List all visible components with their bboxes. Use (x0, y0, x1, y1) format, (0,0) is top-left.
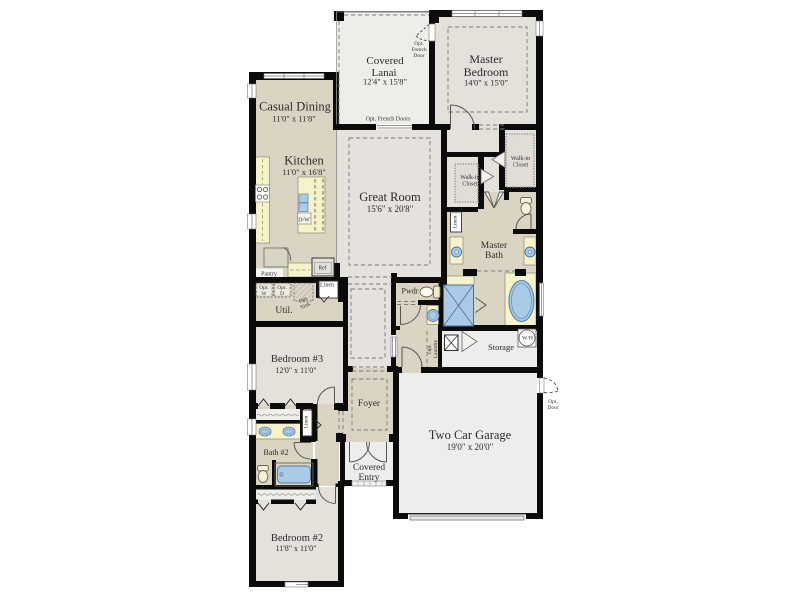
svg-text:Walk-in: Walk-in (460, 175, 479, 181)
svg-text:Bath: Bath (485, 251, 503, 261)
svg-text:15'6" x 20'8": 15'6" x 20'8" (367, 204, 414, 214)
svg-text:Pantry: Pantry (261, 272, 277, 278)
svg-text:12'0" x 11'0": 12'0" x 11'0" (275, 366, 316, 375)
svg-text:Bath #2: Bath #2 (263, 448, 288, 457)
svg-text:Closet: Closet (462, 182, 478, 188)
svg-text:11'8" x 11'0": 11'8" x 11'0" (276, 544, 317, 553)
svg-text:D: D (280, 291, 284, 297)
svg-text:Bedroom #3: Bedroom #3 (271, 354, 323, 365)
svg-text:Laundry: Laundry (433, 339, 439, 358)
svg-text:Pwdr: Pwdr (402, 287, 419, 296)
svg-text:Ref: Ref (318, 265, 326, 272)
svg-text:Door: Door (547, 405, 558, 411)
svg-text:Linen: Linen (304, 415, 310, 428)
svg-text:Entry: Entry (358, 473, 379, 483)
svg-text:Walk-in: Walk-in (511, 156, 530, 162)
svg-text:Covered: Covered (366, 55, 404, 67)
svg-text:Linen: Linen (320, 283, 334, 289)
svg-text:11'0" x 16'8": 11'0" x 16'8" (282, 167, 326, 177)
svg-text:11'0" x 11'8": 11'0" x 11'8" (272, 114, 315, 124)
svg-text:Covered: Covered (353, 463, 385, 473)
svg-text:D/W: D/W (298, 218, 310, 224)
svg-text:Foyer: Foyer (358, 399, 381, 409)
svg-text:Opt. French Doors: Opt. French Doors (366, 117, 411, 123)
svg-text:Bedroom #2: Bedroom #2 (271, 533, 323, 544)
svg-text:W: W (261, 291, 267, 297)
svg-text:Two Car Garage: Two Car Garage (429, 428, 512, 442)
svg-text:Master: Master (481, 241, 508, 251)
svg-text:Storage: Storage (488, 342, 514, 352)
svg-text:Door: Door (413, 53, 424, 59)
svg-text:14'0" x 15'0": 14'0" x 15'0" (464, 78, 508, 88)
svg-text:Great Room: Great Room (359, 190, 421, 204)
svg-text:Closet: Closet (513, 163, 529, 169)
svg-text:Kitchen: Kitchen (284, 154, 324, 168)
svg-text:19'0" x 20'0": 19'0" x 20'0" (447, 442, 494, 452)
svg-text:12'4" x 15'8": 12'4" x 15'8" (363, 77, 407, 87)
svg-text:Master: Master (469, 52, 502, 66)
svg-text:Linen: Linen (453, 215, 459, 228)
svg-text:Util.: Util. (275, 306, 292, 316)
svg-text:Casual Dining: Casual Dining (259, 100, 332, 114)
svg-text:W/H: W/H (522, 336, 533, 342)
